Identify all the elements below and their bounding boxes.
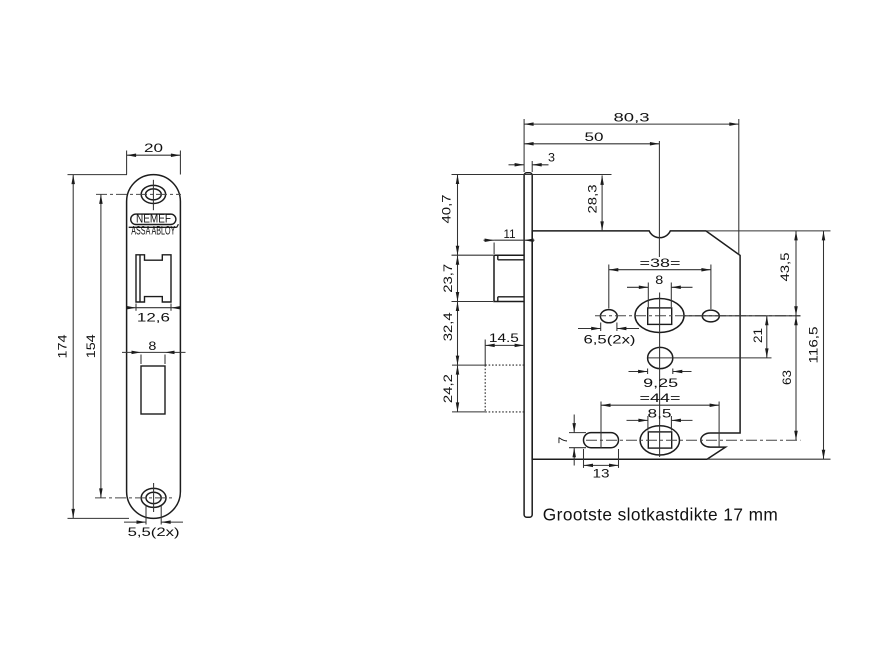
svg-text:14.5: 14.5 xyxy=(489,331,519,345)
svg-text:50: 50 xyxy=(585,130,604,144)
svg-text:=44=: =44= xyxy=(640,391,681,405)
svg-text:8,5: 8,5 xyxy=(648,406,672,420)
svg-text:20: 20 xyxy=(144,141,163,155)
svg-text:6,5(2x): 6,5(2x) xyxy=(584,333,636,347)
svg-text:116,5: 116,5 xyxy=(806,326,820,363)
svg-text:3: 3 xyxy=(548,150,555,164)
svg-text:9,25: 9,25 xyxy=(643,376,678,390)
svg-text:Grootste slotkastdikte 17 mm: Grootste slotkastdikte 17 mm xyxy=(543,504,778,524)
svg-text:5,5(2x): 5,5(2x) xyxy=(128,525,180,539)
svg-text:13: 13 xyxy=(593,466,610,480)
svg-text:ASSA ABLOY: ASSA ABLOY xyxy=(131,224,175,238)
svg-text:63: 63 xyxy=(780,370,794,385)
svg-text:8: 8 xyxy=(148,339,156,353)
svg-text:40,7: 40,7 xyxy=(440,194,454,223)
svg-text:11: 11 xyxy=(504,227,516,241)
svg-text:80,3: 80,3 xyxy=(614,110,650,124)
svg-text:=38=: =38= xyxy=(640,256,681,270)
svg-text:23,7: 23,7 xyxy=(441,263,455,292)
svg-text:43,5: 43,5 xyxy=(778,252,792,281)
svg-text:21: 21 xyxy=(751,328,765,343)
svg-text:12,6: 12,6 xyxy=(137,311,170,325)
svg-text:154: 154 xyxy=(84,334,98,358)
svg-text:8: 8 xyxy=(655,273,663,287)
svg-text:24,2: 24,2 xyxy=(441,374,455,403)
svg-text:174: 174 xyxy=(56,334,70,358)
svg-text:7: 7 xyxy=(556,436,570,443)
svg-text:28,3: 28,3 xyxy=(586,184,600,213)
svg-text:32,4: 32,4 xyxy=(441,312,455,341)
